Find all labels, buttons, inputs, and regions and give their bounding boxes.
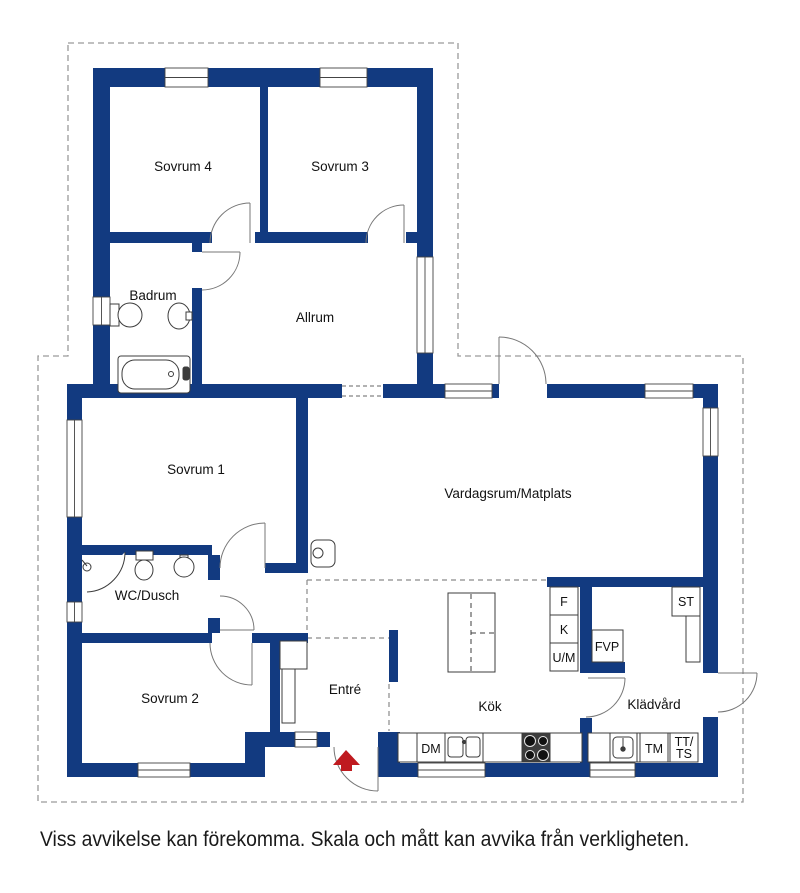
sink-wc (174, 555, 194, 577)
door-entre (334, 747, 378, 791)
window (590, 763, 635, 777)
door-vardagsrum-exterior (499, 337, 546, 384)
window (295, 732, 317, 747)
label-washing-machine: TM (645, 742, 663, 756)
window (703, 408, 718, 456)
floor-plan: Sovrum 4 Sovrum 3 Badrum Allrum Sovrum 1… (0, 0, 800, 815)
room-label-sovrum-3: Sovrum 3 (311, 159, 369, 174)
window (418, 763, 485, 777)
label-dishwasher: DM (421, 742, 440, 756)
door-kladvard-exterior (718, 673, 757, 712)
sink-badrum (168, 303, 192, 329)
kitchen-island (448, 593, 495, 672)
window (67, 602, 82, 622)
room-label-wc-dusch: WC/Dusch (115, 588, 180, 603)
window (67, 420, 82, 517)
room-label-sovrum-2: Sovrum 2 (141, 691, 199, 706)
room-label-badrum: Badrum (129, 288, 176, 303)
shower (82, 552, 125, 592)
stove (522, 733, 550, 762)
window (320, 68, 367, 87)
open-plan-dashed-lines (307, 580, 547, 731)
disclaimer-text: Viss avvikelse kan förekomma. Skala och … (40, 827, 689, 852)
label-heat-pump: FVP (595, 640, 619, 654)
window (93, 297, 110, 325)
window (165, 68, 208, 87)
window (445, 384, 492, 398)
room-label-allrum: Allrum (296, 310, 334, 325)
toilet-badrum (110, 303, 142, 327)
door-kladvard (586, 678, 625, 717)
room-label-sovrum-4: Sovrum 4 (154, 159, 212, 174)
room-label-kok: Kök (478, 699, 502, 714)
room-label-sovrum-1: Sovrum 1 (167, 462, 225, 477)
door-sovrum3 (366, 205, 404, 243)
floor-plan-page: Sovrum 4 Sovrum 3 Badrum Allrum Sovrum 1… (0, 0, 800, 893)
walls (67, 68, 718, 777)
wall-opening-dashed (342, 386, 383, 396)
window (645, 384, 693, 398)
plot-boundary-dashed (38, 43, 743, 802)
door-sovrum4 (210, 203, 250, 243)
entrance-arrow (333, 750, 360, 771)
room-label-vardagsrum: Vardagsrum/Matplats (444, 486, 572, 501)
window (138, 763, 190, 777)
door-badrum (202, 252, 240, 290)
bathtub (118, 356, 190, 393)
window (417, 257, 433, 353)
label-freezer: K (560, 623, 569, 637)
toilet-wc (135, 551, 153, 580)
label-fridge: F (560, 595, 568, 609)
fireplace (311, 540, 335, 567)
label-dryer-line2: TS (676, 747, 692, 761)
label-oven-micro: U/M (553, 651, 576, 665)
room-label-entre: Entré (329, 682, 361, 697)
label-closet-st: ST (678, 595, 694, 609)
room-label-kladvard: Klädvård (627, 697, 680, 712)
door-wcdusch (220, 596, 254, 630)
door-sovrum2 (210, 643, 252, 685)
door-sovrum1 (220, 523, 265, 568)
